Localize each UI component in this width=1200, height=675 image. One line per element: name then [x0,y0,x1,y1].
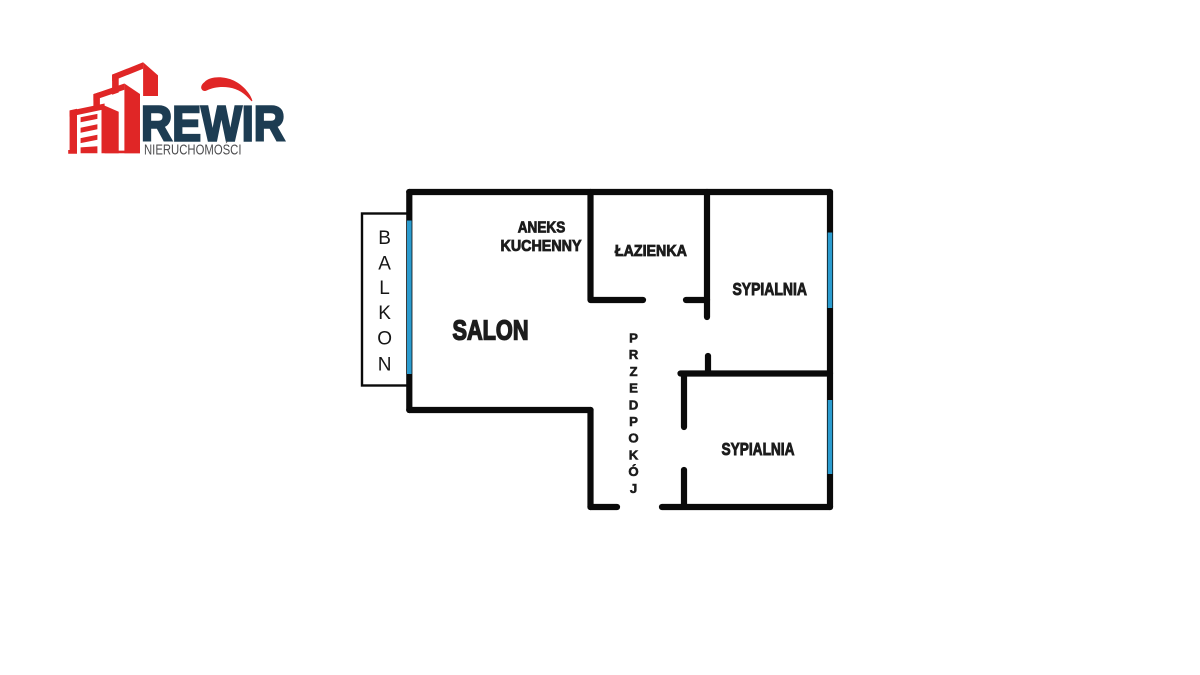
svg-text:P: P [629,331,638,346]
svg-text:ANEKS: ANEKS [518,219,566,236]
svg-text:K: K [378,303,391,324]
svg-text:N: N [378,354,392,375]
svg-text:J: J [630,481,637,496]
svg-text:SYPIALNIA: SYPIALNIA [722,439,795,459]
svg-text:NIERUCHOMOŚCI: NIERUCHOMOŚCI [144,140,242,158]
svg-text:D: D [629,397,639,412]
svg-text:SYPIALNIA: SYPIALNIA [732,279,807,299]
svg-text:L: L [379,278,390,299]
svg-text:KUCHENNY: KUCHENNY [501,238,582,255]
svg-text:SALON: SALON [453,314,529,345]
svg-text:R: R [629,347,639,362]
svg-text:ŁAZIENKA: ŁAZIENKA [615,243,687,260]
svg-text:Ó: Ó [628,464,638,479]
svg-text:A: A [378,254,391,275]
svg-text:K: K [629,447,639,462]
svg-text:B: B [378,228,391,249]
svg-text:P: P [629,414,638,429]
svg-text:E: E [629,381,638,396]
svg-text:O: O [628,431,638,446]
svg-text:Z: Z [629,364,637,379]
svg-text:O: O [377,328,392,349]
